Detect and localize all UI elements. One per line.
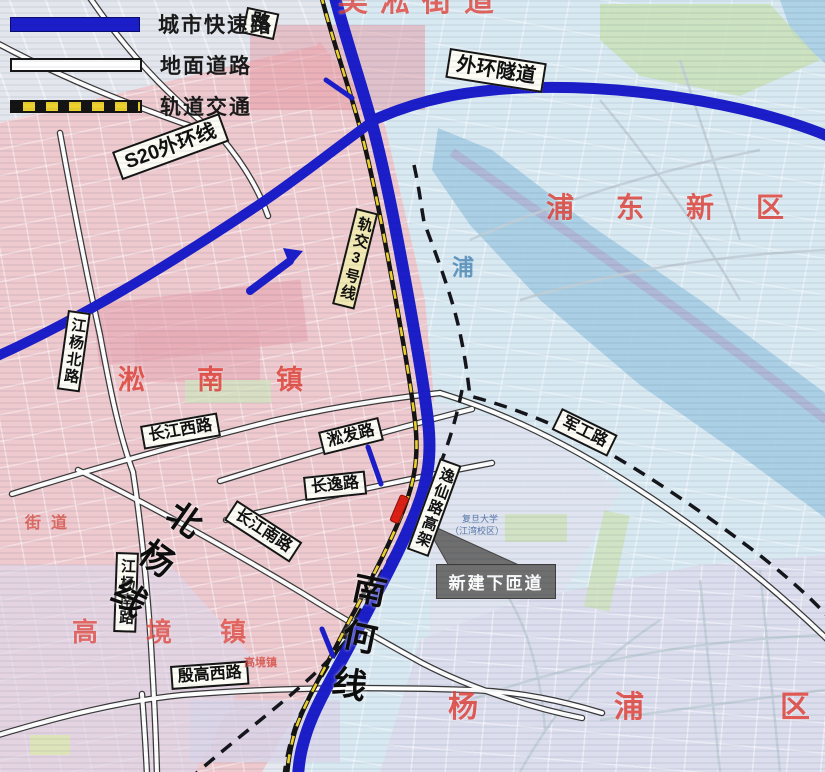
label-pudong-new-area: 浦东新区 — [546, 186, 825, 226]
expressway-outer-ring-tunnel — [376, 87, 825, 137]
map-canvas: S20外环线 外环隧道 轨交3号线 江杨北路 长江西路 淞发路 长逸路 长江南路… — [0, 0, 825, 772]
rail-transit-swatch — [10, 100, 142, 113]
legend-label: 轨道交通 — [160, 91, 252, 121]
label-river-char: 浦 — [452, 250, 474, 282]
ramp-stub — [368, 447, 381, 484]
legend-label: 地面道路 — [160, 50, 252, 80]
park — [30, 735, 70, 755]
label-gaojing-town: 高境镇 — [72, 612, 294, 649]
label-fudan-campus: （江湾校区） — [450, 524, 504, 537]
legend: 城市快速路 地面道路 轨道交通 — [10, 12, 273, 135]
legend-item-rail-transit: 轨道交通 — [10, 94, 273, 118]
callout-new-ramp: 新建下匝道 — [436, 564, 556, 599]
park — [584, 510, 630, 611]
legend-item-surface-road: 地面道路 — [10, 53, 273, 77]
label-yangpu-district: 杨浦区 — [448, 682, 825, 726]
label-jiedao: 街道 — [25, 509, 77, 533]
legend-label: 城市快速路 — [158, 9, 273, 39]
surface-road-swatch — [10, 58, 142, 72]
label-top-clipped-street: 吴淞街道 — [338, 0, 506, 20]
expressway-swatch — [10, 17, 140, 32]
label-gaojing-small: 高境镇 — [244, 654, 277, 670]
park — [505, 514, 567, 542]
interchange-ramp — [250, 261, 290, 291]
label-songnan-town: 淞南镇 — [118, 358, 355, 397]
legend-item-expressway: 城市快速路 — [10, 12, 273, 36]
